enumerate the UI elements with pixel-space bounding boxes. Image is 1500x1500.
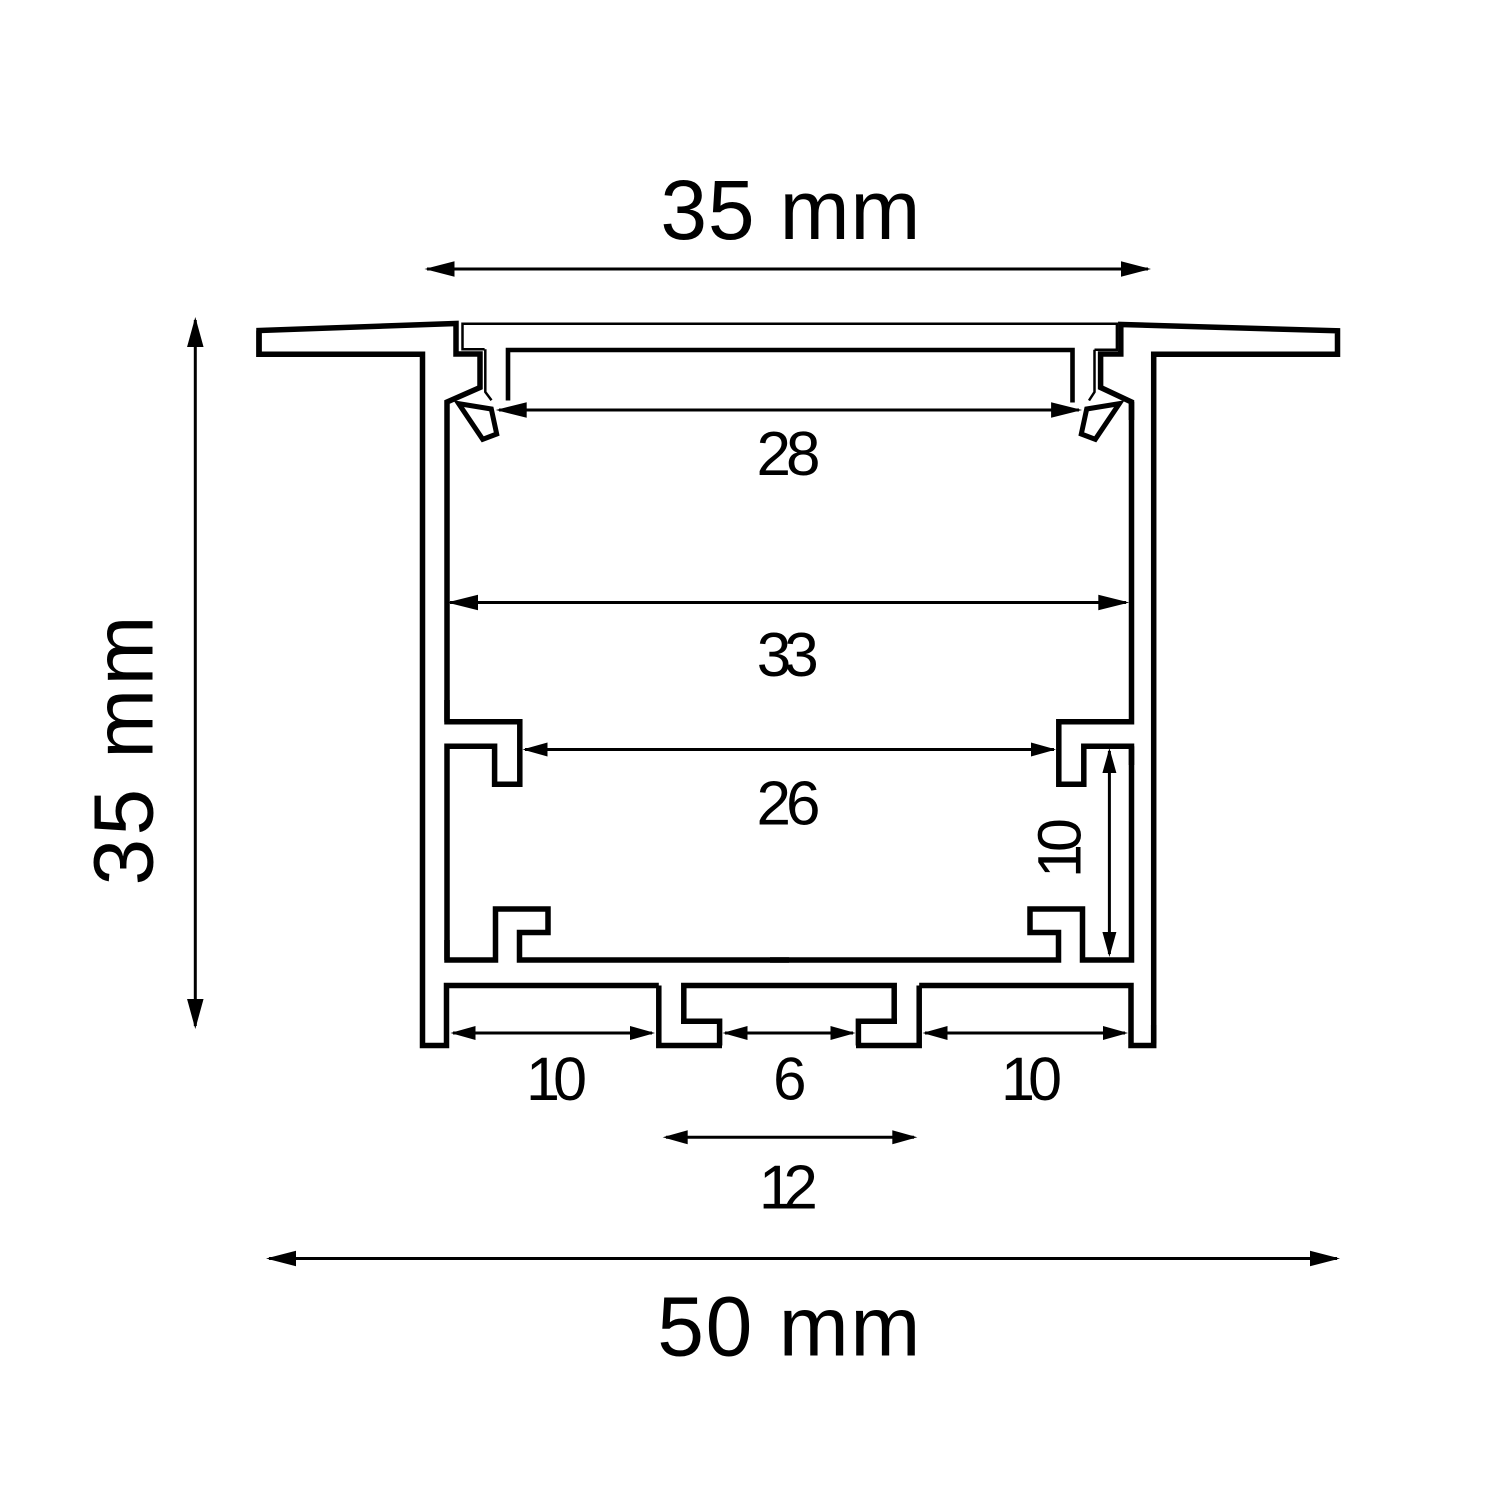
svg-text:33: 33 — [757, 621, 819, 690]
svg-text:6: 6 — [773, 1046, 806, 1113]
svg-text:28: 28 — [757, 420, 821, 489]
svg-text:10: 10 — [1026, 818, 1094, 878]
svg-text:26: 26 — [757, 770, 821, 839]
svg-text:10: 10 — [1001, 1045, 1062, 1113]
svg-text:12: 12 — [759, 1154, 818, 1223]
svg-text:35 mm: 35 mm — [77, 616, 171, 886]
svg-text:50 mm: 50 mm — [657, 1280, 920, 1374]
svg-text:10: 10 — [526, 1045, 587, 1113]
svg-text:35 mm: 35 mm — [660, 163, 920, 257]
